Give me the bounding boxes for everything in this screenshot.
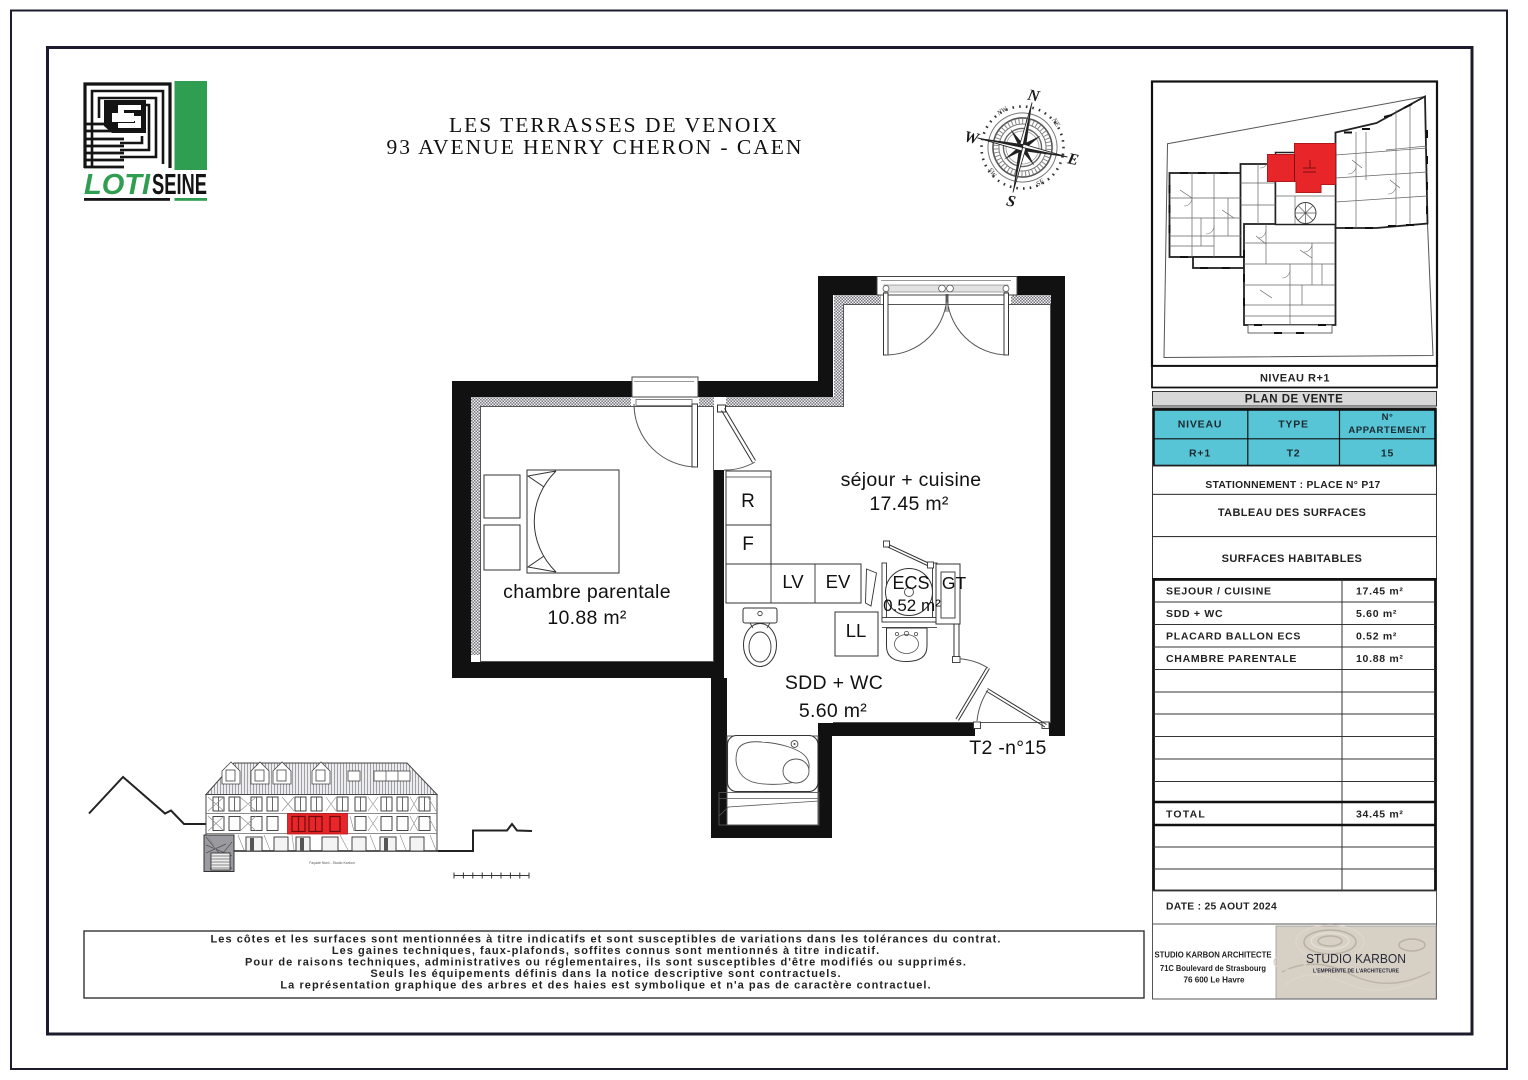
svg-text:La représentation graphique d: La représentation graphique des arbres e… <box>280 980 931 992</box>
svg-text:5.60 m²: 5.60 m² <box>1356 608 1397 620</box>
svg-text:93 AVENUE HENRY CHERON - CAEN: 93 AVENUE HENRY CHERON - CAEN <box>387 135 804 159</box>
svg-text:EV: EV <box>826 571 851 592</box>
svg-text:LL: LL <box>846 620 867 641</box>
svg-text:SDD + WC: SDD + WC <box>785 672 883 694</box>
svg-text:TYPE: TYPE <box>1278 419 1309 431</box>
svg-text:N°: N° <box>1382 412 1394 423</box>
svg-text:CHAMBRE PARENTALE: CHAMBRE PARENTALE <box>1166 653 1297 665</box>
svg-text:Les côtes et les surfaces sont: Les côtes et les surfaces sont mentionné… <box>211 934 1002 946</box>
svg-text:SEINE: SEINE <box>152 169 207 201</box>
svg-text:R+1: R+1 <box>1189 448 1211 460</box>
svg-text:chambre parentale: chambre parentale <box>503 581 671 603</box>
svg-text:10.88 m²: 10.88 m² <box>547 607 627 629</box>
svg-text:PLACARD BALLON ECS: PLACARD BALLON ECS <box>1166 631 1301 643</box>
svg-text:76 600 Le Havre: 76 600 Le Havre <box>1184 975 1245 985</box>
svg-text:NIVEAU R+1: NIVEAU R+1 <box>1260 373 1330 385</box>
svg-text:Façade Nord - Studio Karbon: Façade Nord - Studio Karbon <box>309 861 355 865</box>
svg-text:SEJOUR / CUISINE: SEJOUR / CUISINE <box>1166 586 1272 598</box>
svg-text:10.88 m²: 10.88 m² <box>1356 653 1404 665</box>
svg-text:SURFACES HABITABLES: SURFACES HABITABLES <box>1222 553 1363 565</box>
svg-text:GT: GT <box>942 573 967 593</box>
svg-text:L'EMPREINTE DE L'ARCHITECTURE: L'EMPREINTE DE L'ARCHITECTURE <box>1313 969 1400 975</box>
svg-text:15: 15 <box>1381 448 1394 460</box>
svg-text:0.52 m²: 0.52 m² <box>1356 631 1397 643</box>
svg-text:T2: T2 <box>1287 448 1301 460</box>
svg-text:LOTI: LOTI <box>84 169 151 201</box>
svg-text:5.60 m²: 5.60 m² <box>799 700 867 722</box>
svg-text:LES TERRASSES DE VENOIX: LES TERRASSES DE VENOIX <box>449 113 779 137</box>
svg-text:TABLEAU DES SURFACES: TABLEAU DES SURFACES <box>1218 507 1366 519</box>
svg-text:NIVEAU: NIVEAU <box>1178 419 1222 431</box>
svg-text:17.45 m²: 17.45 m² <box>1356 586 1404 598</box>
svg-text:R: R <box>741 491 755 512</box>
svg-text:T2 -n°15: T2 -n°15 <box>969 737 1046 759</box>
svg-text:LV: LV <box>782 571 804 592</box>
svg-text:17.45 m²: 17.45 m² <box>869 493 949 515</box>
svg-text:Pour de raisons techniques, ad: Pour de raisons techniques, administrati… <box>245 957 967 969</box>
svg-text:DATE : 25 AOUT 2024: DATE : 25 AOUT 2024 <box>1166 902 1277 913</box>
svg-text:Les gaines techniques, faux-pl: Les gaines techniques, faux-plafonds, so… <box>332 945 880 957</box>
svg-text:STATIONNEMENT : PLACE N° P17: STATIONNEMENT : PLACE N° P17 <box>1205 480 1380 491</box>
svg-text:F: F <box>742 534 754 555</box>
svg-text:TOTAL: TOTAL <box>1166 809 1206 821</box>
svg-text:STUDIO KARBON ARCHITECTE: STUDIO KARBON ARCHITECTE <box>1155 950 1272 960</box>
svg-text:0.52 m²: 0.52 m² <box>883 596 941 615</box>
svg-text:PLAN DE VENTE: PLAN DE VENTE <box>1245 394 1344 406</box>
svg-text:71C Boulevard de Strasbourg: 71C Boulevard de Strasbourg <box>1160 963 1266 973</box>
svg-text:STUDIO KARBON: STUDIO KARBON <box>1306 952 1406 966</box>
svg-text:Seuls les équipements définis: Seuls les équipements définis dans la no… <box>370 968 841 980</box>
svg-text:séjour + cuisine: séjour + cuisine <box>841 469 982 491</box>
svg-text:APPARTEMENT: APPARTEMENT <box>1348 425 1426 436</box>
svg-text:SDD + WC: SDD + WC <box>1166 608 1223 620</box>
svg-text:ECS: ECS <box>892 573 929 593</box>
svg-text:34.45 m²: 34.45 m² <box>1356 809 1404 821</box>
